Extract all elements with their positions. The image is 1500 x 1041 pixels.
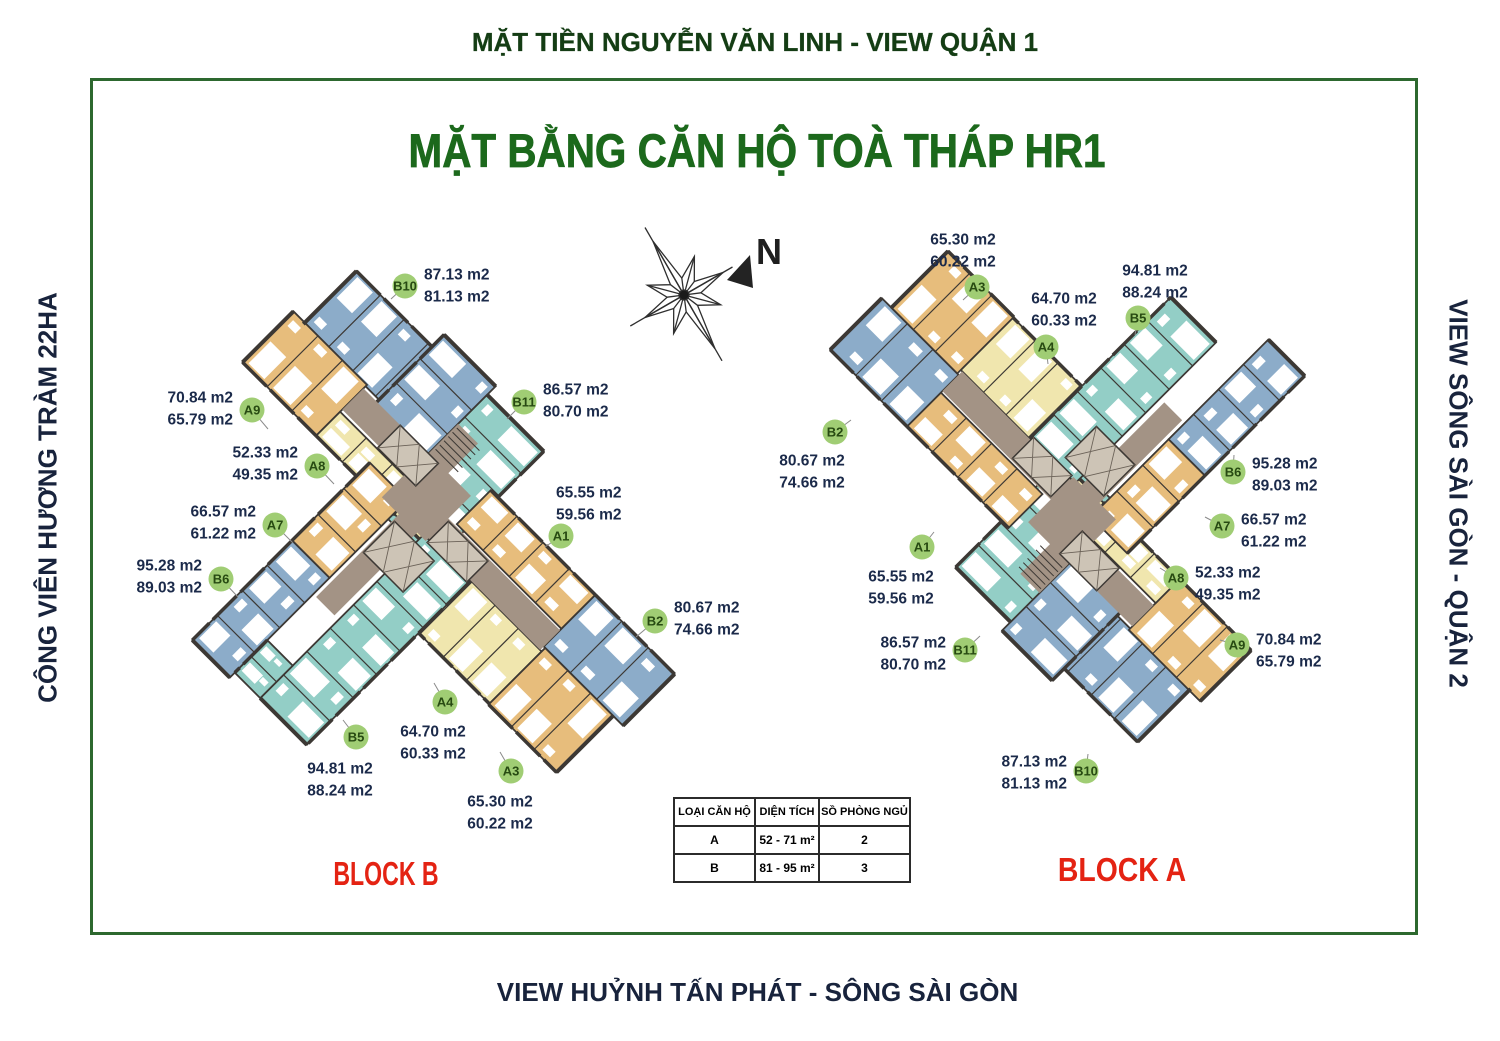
svg-text:65.55 m2: 65.55 m2 <box>868 569 934 586</box>
svg-text:80.70 m2: 80.70 m2 <box>543 404 609 421</box>
svg-text:95.28 m2: 95.28 m2 <box>1252 456 1318 473</box>
svg-text:64.70 m2: 64.70 m2 <box>400 724 466 741</box>
svg-text:B11: B11 <box>953 643 976 658</box>
svg-text:87.13 m2: 87.13 m2 <box>424 267 490 284</box>
svg-text:B6: B6 <box>1225 465 1242 480</box>
svg-text:49.35 m2: 49.35 m2 <box>233 467 299 484</box>
svg-text:A7: A7 <box>267 518 284 533</box>
svg-text:80.67 m2: 80.67 m2 <box>674 600 740 617</box>
svg-text:A8: A8 <box>309 459 326 474</box>
svg-text:94.81 m2: 94.81 m2 <box>307 761 373 778</box>
svg-text:61.22 m2: 61.22 m2 <box>191 526 257 543</box>
svg-text:B5: B5 <box>1130 311 1147 326</box>
svg-text:86.57 m2: 86.57 m2 <box>543 382 609 399</box>
svg-text:74.66 m2: 74.66 m2 <box>779 475 845 492</box>
svg-text:80.67 m2: 80.67 m2 <box>779 453 845 470</box>
svg-text:A1: A1 <box>914 540 931 555</box>
svg-text:60.22 m2: 60.22 m2 <box>930 254 996 271</box>
svg-text:65.79 m2: 65.79 m2 <box>168 412 234 429</box>
svg-text:A9: A9 <box>1229 638 1246 653</box>
svg-text:N: N <box>756 231 782 272</box>
svg-text:86.57 m2: 86.57 m2 <box>881 635 947 652</box>
svg-text:70.84 m2: 70.84 m2 <box>168 390 234 407</box>
svg-text:A3: A3 <box>503 764 520 779</box>
svg-text:80.70 m2: 80.70 m2 <box>881 657 947 674</box>
svg-text:65.30 m2: 65.30 m2 <box>467 794 533 811</box>
svg-text:B10: B10 <box>1074 764 1098 779</box>
svg-text:95.28 m2: 95.28 m2 <box>137 558 203 575</box>
svg-text:A8: A8 <box>1168 571 1185 586</box>
svg-text:52.33 m2: 52.33 m2 <box>1195 565 1261 582</box>
svg-text:B2: B2 <box>647 614 664 629</box>
svg-text:60.33 m2: 60.33 m2 <box>400 746 466 763</box>
svg-text:88.24 m2: 88.24 m2 <box>307 783 373 800</box>
svg-text:65.55 m2: 65.55 m2 <box>556 485 622 502</box>
svg-text:A1: A1 <box>553 529 570 544</box>
svg-text:81.13 m2: 81.13 m2 <box>424 289 490 306</box>
svg-text:88.24 m2: 88.24 m2 <box>1122 285 1188 302</box>
svg-text:87.13 m2: 87.13 m2 <box>1002 754 1068 771</box>
svg-text:66.57 m2: 66.57 m2 <box>1241 512 1307 529</box>
svg-text:A4: A4 <box>437 695 454 710</box>
svg-text:A7: A7 <box>1214 519 1231 534</box>
svg-text:B6: B6 <box>213 572 230 587</box>
svg-text:65.79 m2: 65.79 m2 <box>1256 654 1322 671</box>
svg-text:52.33 m2: 52.33 m2 <box>233 445 299 462</box>
svg-text:B5: B5 <box>348 730 365 745</box>
svg-text:A9: A9 <box>244 403 261 418</box>
svg-text:60.33 m2: 60.33 m2 <box>1031 313 1097 330</box>
svg-text:89.03 m2: 89.03 m2 <box>137 580 203 597</box>
svg-text:64.70 m2: 64.70 m2 <box>1031 291 1097 308</box>
svg-text:60.22 m2: 60.22 m2 <box>467 816 533 833</box>
svg-text:B10: B10 <box>393 279 417 294</box>
svg-text:66.57 m2: 66.57 m2 <box>191 504 257 521</box>
svg-text:A4: A4 <box>1038 340 1055 355</box>
svg-text:B11: B11 <box>512 395 535 410</box>
svg-text:81.13 m2: 81.13 m2 <box>1002 776 1068 793</box>
svg-text:59.56 m2: 59.56 m2 <box>868 591 934 608</box>
svg-text:89.03 m2: 89.03 m2 <box>1252 478 1318 495</box>
svg-text:74.66 m2: 74.66 m2 <box>674 622 740 639</box>
svg-text:59.56 m2: 59.56 m2 <box>556 507 622 524</box>
svg-text:49.35 m2: 49.35 m2 <box>1195 587 1261 604</box>
svg-text:70.84 m2: 70.84 m2 <box>1256 632 1322 649</box>
svg-text:61.22 m2: 61.22 m2 <box>1241 534 1307 551</box>
svg-text:65.30 m2: 65.30 m2 <box>930 232 996 249</box>
svg-text:A3: A3 <box>969 280 986 295</box>
svg-text:94.81 m2: 94.81 m2 <box>1122 263 1188 280</box>
svg-text:B2: B2 <box>827 425 844 440</box>
